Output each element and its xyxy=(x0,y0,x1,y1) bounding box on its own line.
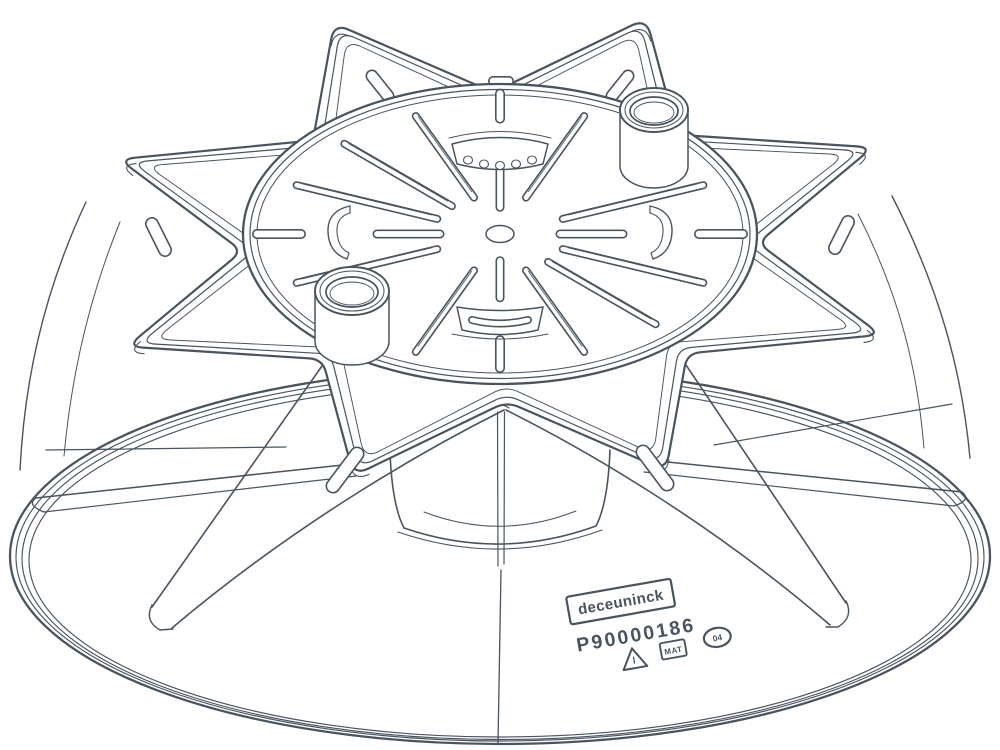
date-stamp-text: 04 xyxy=(712,632,723,644)
pedestal-technical-drawing: deceuninck P90000186 MAT 04 xyxy=(0,0,1000,750)
pedestal-support-illustration: deceuninck P90000186 MAT 04 xyxy=(0,0,1000,750)
drawing-linework xyxy=(10,23,990,744)
